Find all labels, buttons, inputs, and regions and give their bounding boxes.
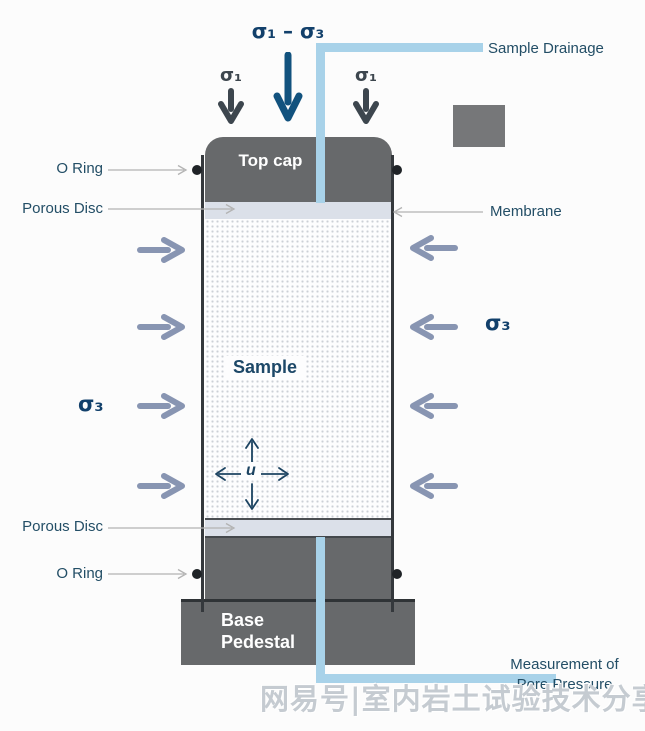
o-ring-bottom-label: O Ring — [10, 566, 103, 582]
confining-stress-label-left: σ₃ — [78, 392, 104, 416]
membrane-label: Membrane — [490, 204, 562, 220]
confining-arrow-left-4 — [137, 473, 187, 499]
measurement-line1: Measurement of — [492, 655, 637, 675]
deviator-stress-arrow — [273, 52, 303, 124]
confining-arrow-right-3 — [408, 393, 458, 419]
watermark: 网易号|室内岩土试验技术分享 — [260, 676, 645, 718]
confining-arrow-left-3 — [137, 393, 187, 419]
confining-arrow-right-4 — [408, 473, 458, 499]
porous-disc-bottom-label: Porous Disc — [10, 519, 103, 535]
base-pedestal-label: Base Pedestal — [221, 609, 321, 653]
membrane-right-line — [391, 155, 394, 612]
o-ring-top-right — [392, 165, 402, 175]
sample-drainage-label: Sample Drainage — [488, 41, 604, 57]
porous-disc-bottom-leader — [108, 522, 240, 534]
axial-stress-arrow-right — [352, 88, 380, 126]
sample-label: Sample — [226, 356, 304, 379]
gray-square — [453, 105, 505, 147]
o-ring-bottom-left — [192, 569, 202, 579]
confining-arrow-left-2 — [137, 314, 187, 340]
o-ring-top-left — [192, 165, 202, 175]
axial-stress-label-right: σ₁ — [338, 65, 394, 86]
deviator-stress-label: σ₁ – σ₃ — [243, 19, 333, 43]
axial-stress-label-left: σ₁ — [203, 65, 259, 86]
confining-arrow-right-1 — [408, 235, 458, 261]
porous-disc-top-leader — [108, 203, 240, 215]
o-ring-top-label: O Ring — [10, 161, 103, 177]
top-cap-label: Top cap — [213, 151, 328, 171]
pore-pressure-symbol: u — [241, 462, 261, 480]
o-ring-top-leader — [108, 164, 192, 176]
confining-stress-label-right: σ₃ — [485, 311, 511, 335]
porous-disc-top-label: Porous Disc — [10, 201, 103, 217]
drainage-tube-vertical — [316, 43, 325, 203]
membrane-left-line — [201, 155, 204, 612]
bottom-cap — [205, 538, 392, 601]
confining-arrow-right-2 — [408, 314, 458, 340]
o-ring-bottom-right — [392, 569, 402, 579]
confining-arrow-left-1 — [137, 237, 187, 263]
drainage-tube-horizontal — [316, 43, 483, 52]
axial-stress-arrow-left — [217, 88, 245, 126]
membrane-leader — [393, 206, 485, 218]
triaxial-test-diagram: σ₁ – σ₃ σ₁ σ₁ Sample Drainage O Ring Por… — [0, 0, 645, 731]
o-ring-bottom-leader — [108, 568, 192, 580]
